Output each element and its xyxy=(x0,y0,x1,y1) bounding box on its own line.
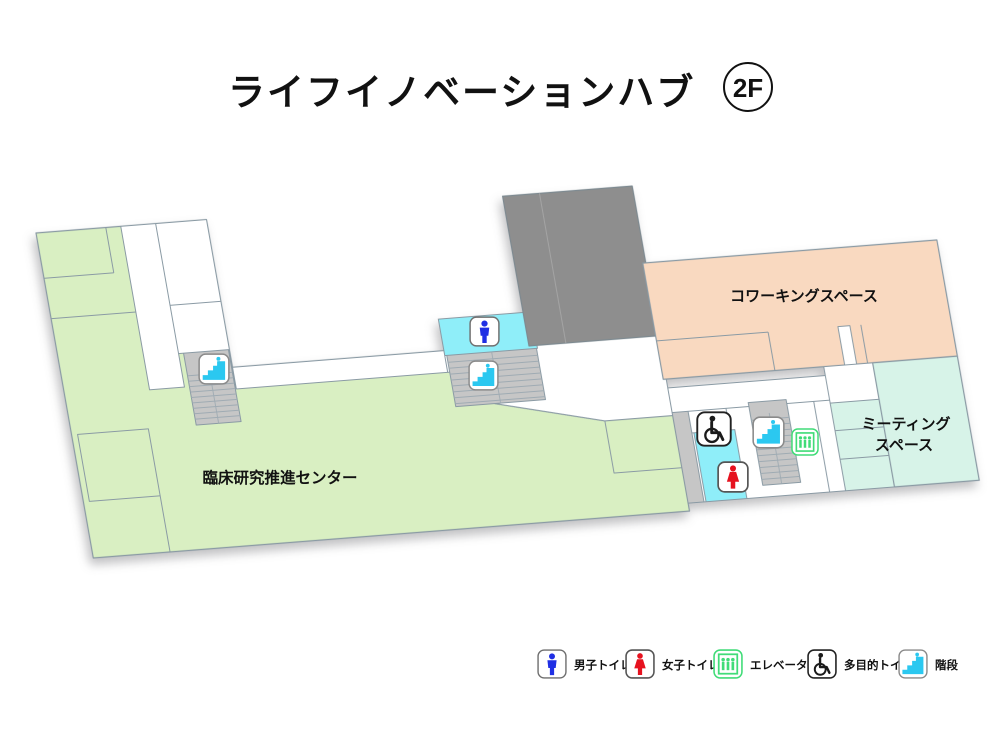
page-title: ライフイノベーションハブ xyxy=(228,62,695,116)
right-white-gap xyxy=(824,363,879,403)
accessible-toilet-icon xyxy=(807,649,837,679)
stairs-icon xyxy=(469,361,498,390)
womens-toilet-icon xyxy=(718,462,748,492)
womens-toilet-icon xyxy=(625,649,655,679)
mens-toilet-icon xyxy=(537,649,567,679)
stairs-icon xyxy=(199,354,229,384)
legend-label: 女子トイレ xyxy=(662,657,720,673)
legend-label: 男子トイレ xyxy=(574,657,632,673)
utility-block-dark xyxy=(503,186,659,346)
floor-map-page: 臨床研究推進センター コワーキングスペース ミーティング スペース ライフイノベ… xyxy=(0,0,1001,729)
meeting-space-label-line1: ミーティング xyxy=(861,415,950,433)
legend-label: 階段 xyxy=(935,657,958,673)
stairs-icon xyxy=(898,649,928,679)
elevator-icon xyxy=(792,429,818,455)
meeting-space-label-line2: スペース xyxy=(875,437,933,454)
elevator-icon xyxy=(713,649,743,679)
floor-badge: 2F xyxy=(723,62,773,112)
floor-plan xyxy=(36,163,981,558)
accessible-toilet-icon xyxy=(697,412,730,445)
zone-coworking-space xyxy=(643,240,958,379)
mens-toilet-icon xyxy=(470,317,499,346)
stairs-icon xyxy=(753,417,784,448)
clinical-research-center-label: 臨床研究推進センター xyxy=(202,468,357,487)
coworking-space-label: コワーキングスペース xyxy=(730,287,878,305)
